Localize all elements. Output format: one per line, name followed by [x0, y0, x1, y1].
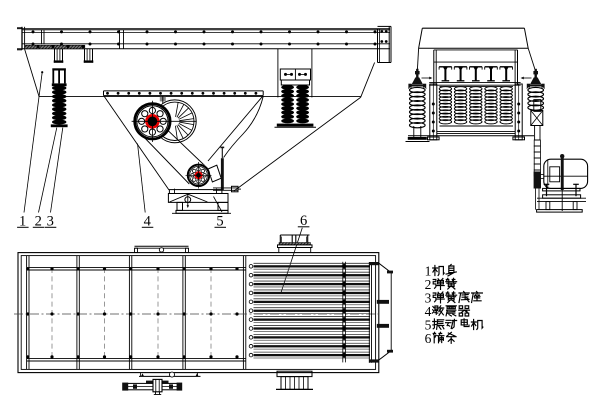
- svg-text:6: 6: [425, 331, 432, 346]
